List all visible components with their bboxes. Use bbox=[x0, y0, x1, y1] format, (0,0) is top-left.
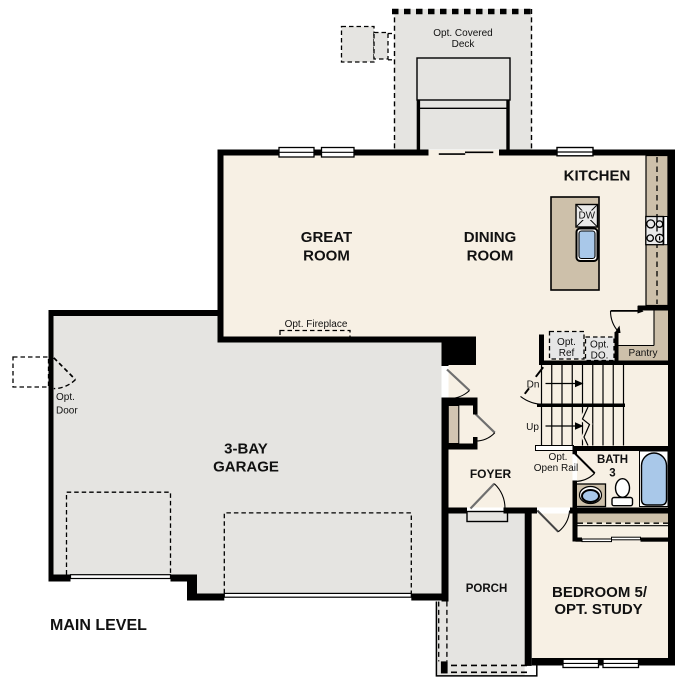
svg-text:Opt.: Opt. bbox=[549, 452, 568, 463]
svg-text:Up: Up bbox=[526, 422, 539, 433]
svg-text:Ref: Ref bbox=[559, 348, 575, 359]
svg-text:OPT. STUDY: OPT. STUDY bbox=[554, 601, 642, 618]
svg-text:DO.: DO. bbox=[591, 351, 609, 362]
svg-text:PORCH: PORCH bbox=[466, 583, 508, 595]
svg-text:Opt.: Opt. bbox=[557, 337, 576, 348]
svg-text:Deck: Deck bbox=[452, 39, 476, 50]
svg-text:ROOM: ROOM bbox=[467, 248, 514, 265]
svg-text:Opt.: Opt. bbox=[590, 340, 609, 351]
svg-text:DINING: DINING bbox=[464, 229, 517, 246]
svg-text:GARAGE: GARAGE bbox=[213, 459, 279, 476]
svg-text:Opt. Covered: Opt. Covered bbox=[433, 28, 492, 39]
svg-text:Open Rail: Open Rail bbox=[534, 463, 578, 474]
svg-text:Door: Door bbox=[56, 406, 78, 417]
svg-text:3: 3 bbox=[609, 468, 615, 480]
svg-text:BEDROOM 5/: BEDROOM 5/ bbox=[552, 584, 648, 601]
svg-text:KITCHEN: KITCHEN bbox=[564, 168, 631, 185]
svg-text:Opt.: Opt. bbox=[56, 392, 75, 403]
svg-text:ROOM: ROOM bbox=[303, 248, 350, 265]
svg-text:MAIN LEVEL: MAIN LEVEL bbox=[50, 617, 147, 634]
svg-text:FOYER: FOYER bbox=[470, 467, 512, 481]
svg-text:DW: DW bbox=[578, 211, 595, 222]
svg-text:Opt. Fireplace: Opt. Fireplace bbox=[285, 319, 348, 330]
svg-text:GREAT: GREAT bbox=[301, 229, 352, 246]
svg-text:Pantry: Pantry bbox=[629, 348, 658, 359]
svg-text:3-BAY: 3-BAY bbox=[224, 441, 268, 458]
svg-text:BATH: BATH bbox=[597, 454, 628, 466]
